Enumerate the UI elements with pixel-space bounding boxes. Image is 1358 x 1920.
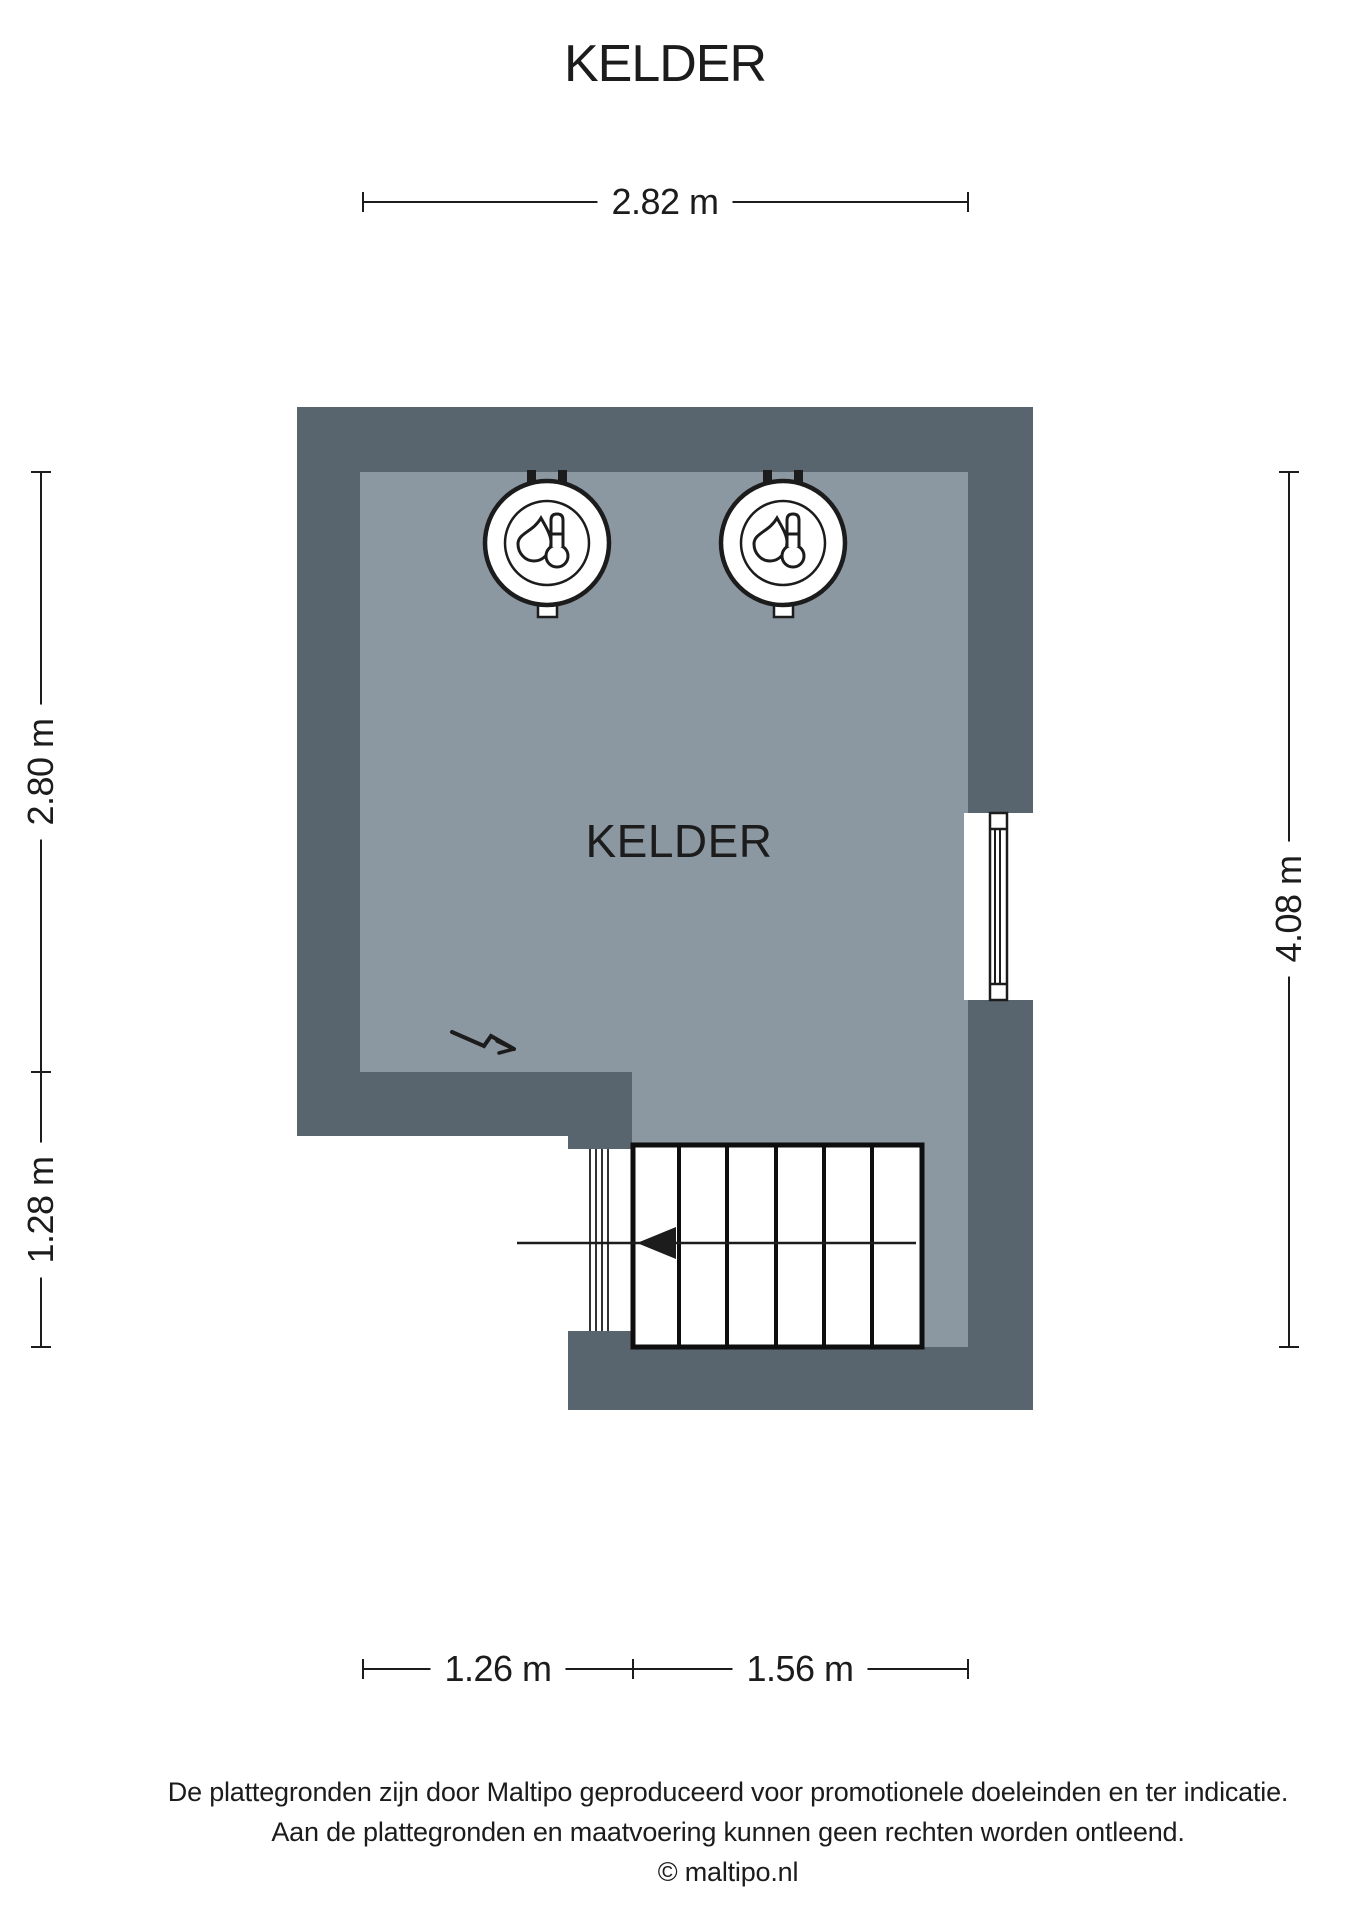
footer-line-2: Aan de plattegronden en maatvoering kunn…	[48, 1812, 1358, 1852]
dimension-right: 4.08 m	[1268, 841, 1310, 976]
floor-plan-drawing	[0, 0, 1358, 1920]
footer-line-3: © maltipo.nl	[48, 1852, 1358, 1892]
page-title: KELDER	[365, 34, 965, 94]
dimension-bottom-right: 1.56 m	[732, 1648, 867, 1690]
dimension-left-lower: 1.28 m	[20, 1142, 62, 1277]
dimension-bottom-left: 1.26 m	[430, 1648, 565, 1690]
room-label: KELDER	[479, 814, 879, 868]
footer-line-1: De plattegronden zijn door Maltipo gepro…	[48, 1772, 1358, 1812]
footer-disclaimer: De plattegronden zijn door Maltipo gepro…	[48, 1772, 1358, 1892]
dimension-top: 2.82 m	[597, 181, 732, 223]
floorplan-page: KELDER 2.82 m 2.80 m 1.28 m 4.08 m 1.26 …	[0, 0, 1358, 1920]
door-opening	[568, 1149, 633, 1331]
window-icon	[990, 813, 1007, 1000]
dimension-left-upper: 2.80 m	[20, 704, 62, 839]
